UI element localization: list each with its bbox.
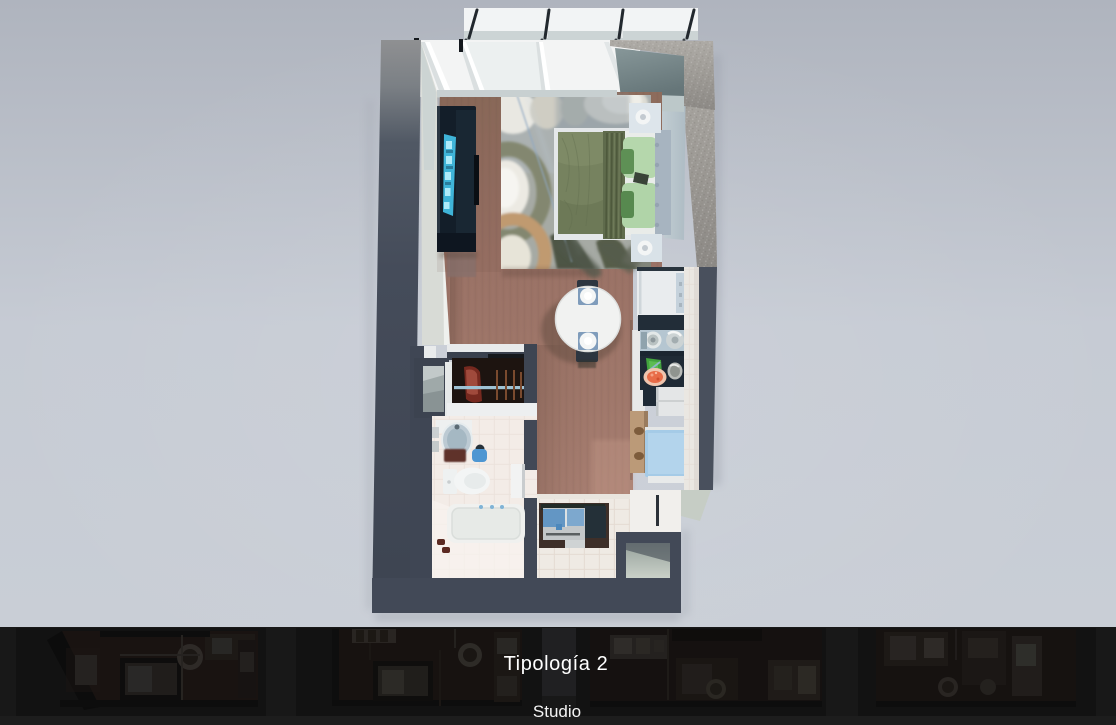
svg-text:Tipología 2: Tipología 2 (504, 653, 609, 675)
svg-text:Studio: Studio (533, 702, 581, 721)
